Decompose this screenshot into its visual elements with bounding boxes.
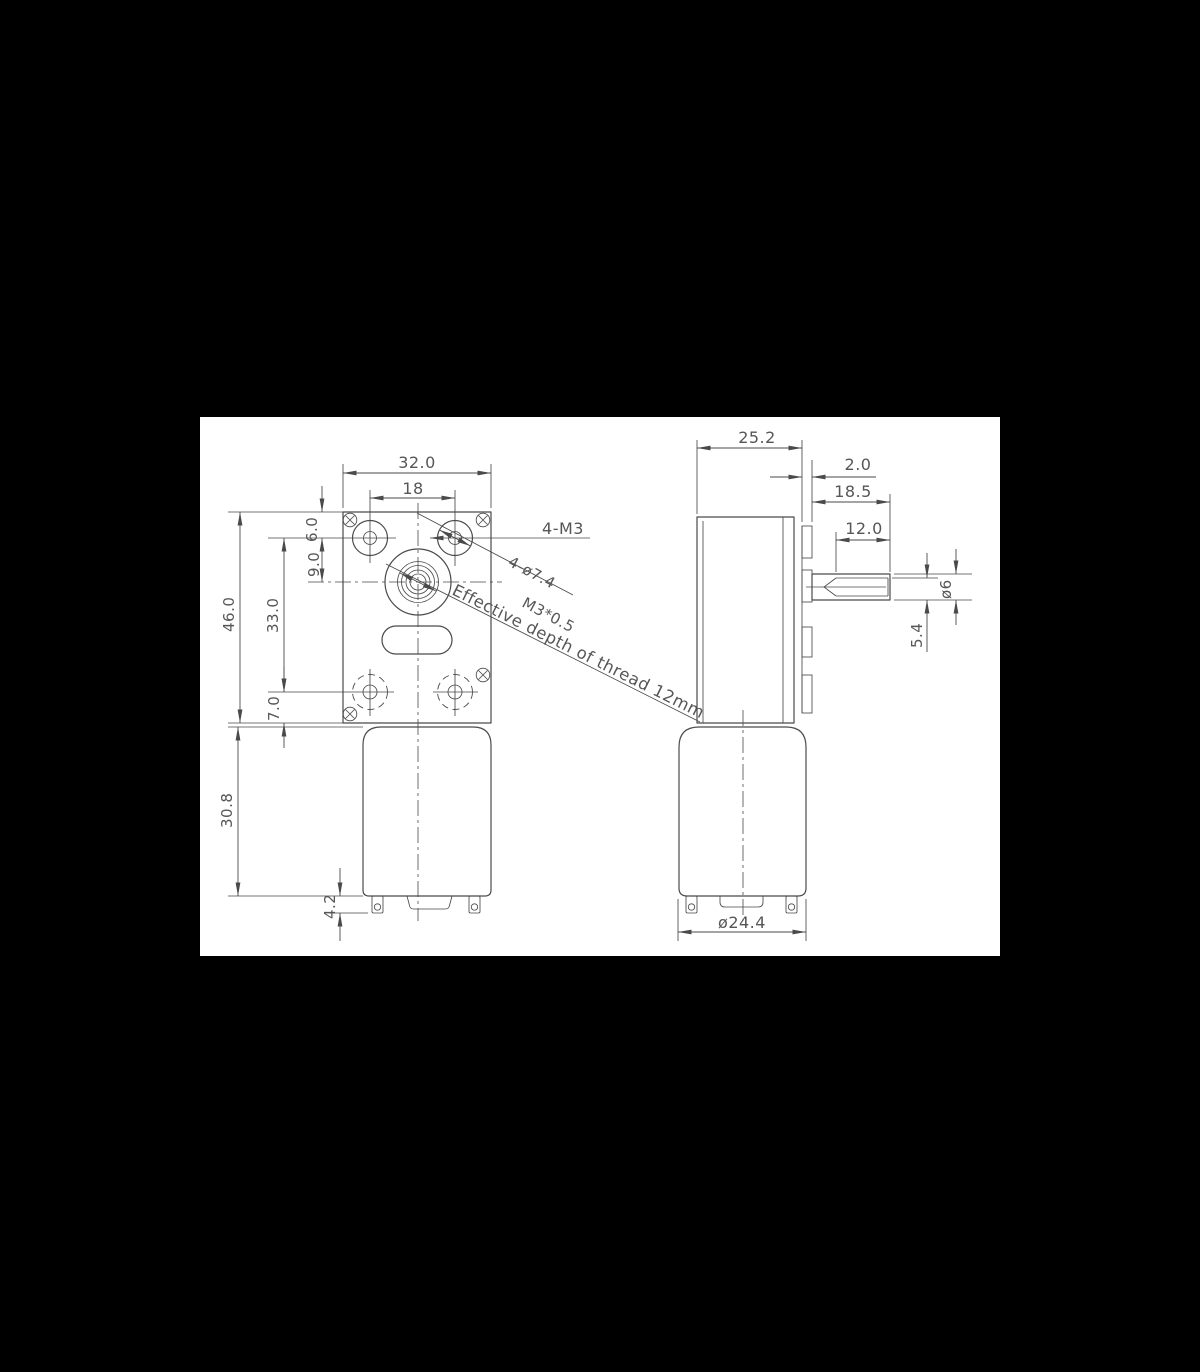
- dim-terminal-length: 4.2: [321, 894, 339, 919]
- dim-motor-diameter: ø24.4: [718, 913, 766, 932]
- dim-shaft-flat-height: 5.4: [908, 623, 926, 648]
- dim-overall-height: 46.0: [220, 597, 238, 632]
- dim-hole-spacing-v: 33.0: [264, 598, 282, 633]
- dim-flange-thickness: 2.0: [845, 455, 872, 474]
- dim-hole-spacing-h: 18: [402, 479, 423, 498]
- dim-holes-to-shaft: 9.0: [305, 552, 323, 577]
- dim-top-to-holes: 6.0: [303, 517, 321, 542]
- dim-shaft-length: 18.5: [834, 482, 872, 501]
- dim-shaft-diameter: ø6: [937, 579, 955, 599]
- dim-flat-length: 12.0: [845, 519, 883, 538]
- dim-body-depth: 25.2: [738, 428, 776, 447]
- dim-holes-to-bottom: 7.0: [265, 696, 283, 721]
- dim-motor-length: 30.8: [218, 793, 236, 828]
- drawing-sheet: [200, 417, 1000, 956]
- drawing-canvas: 32.0 18 46.0 33.0 7.0 6.0 9.0 30.8 4.2 4…: [0, 0, 1200, 1372]
- dim-overall-width: 32.0: [398, 453, 436, 472]
- technical-drawing: 32.0 18 46.0 33.0 7.0 6.0 9.0 30.8 4.2 4…: [0, 0, 1200, 1372]
- screw-spec-label: 4-M3: [542, 519, 584, 538]
